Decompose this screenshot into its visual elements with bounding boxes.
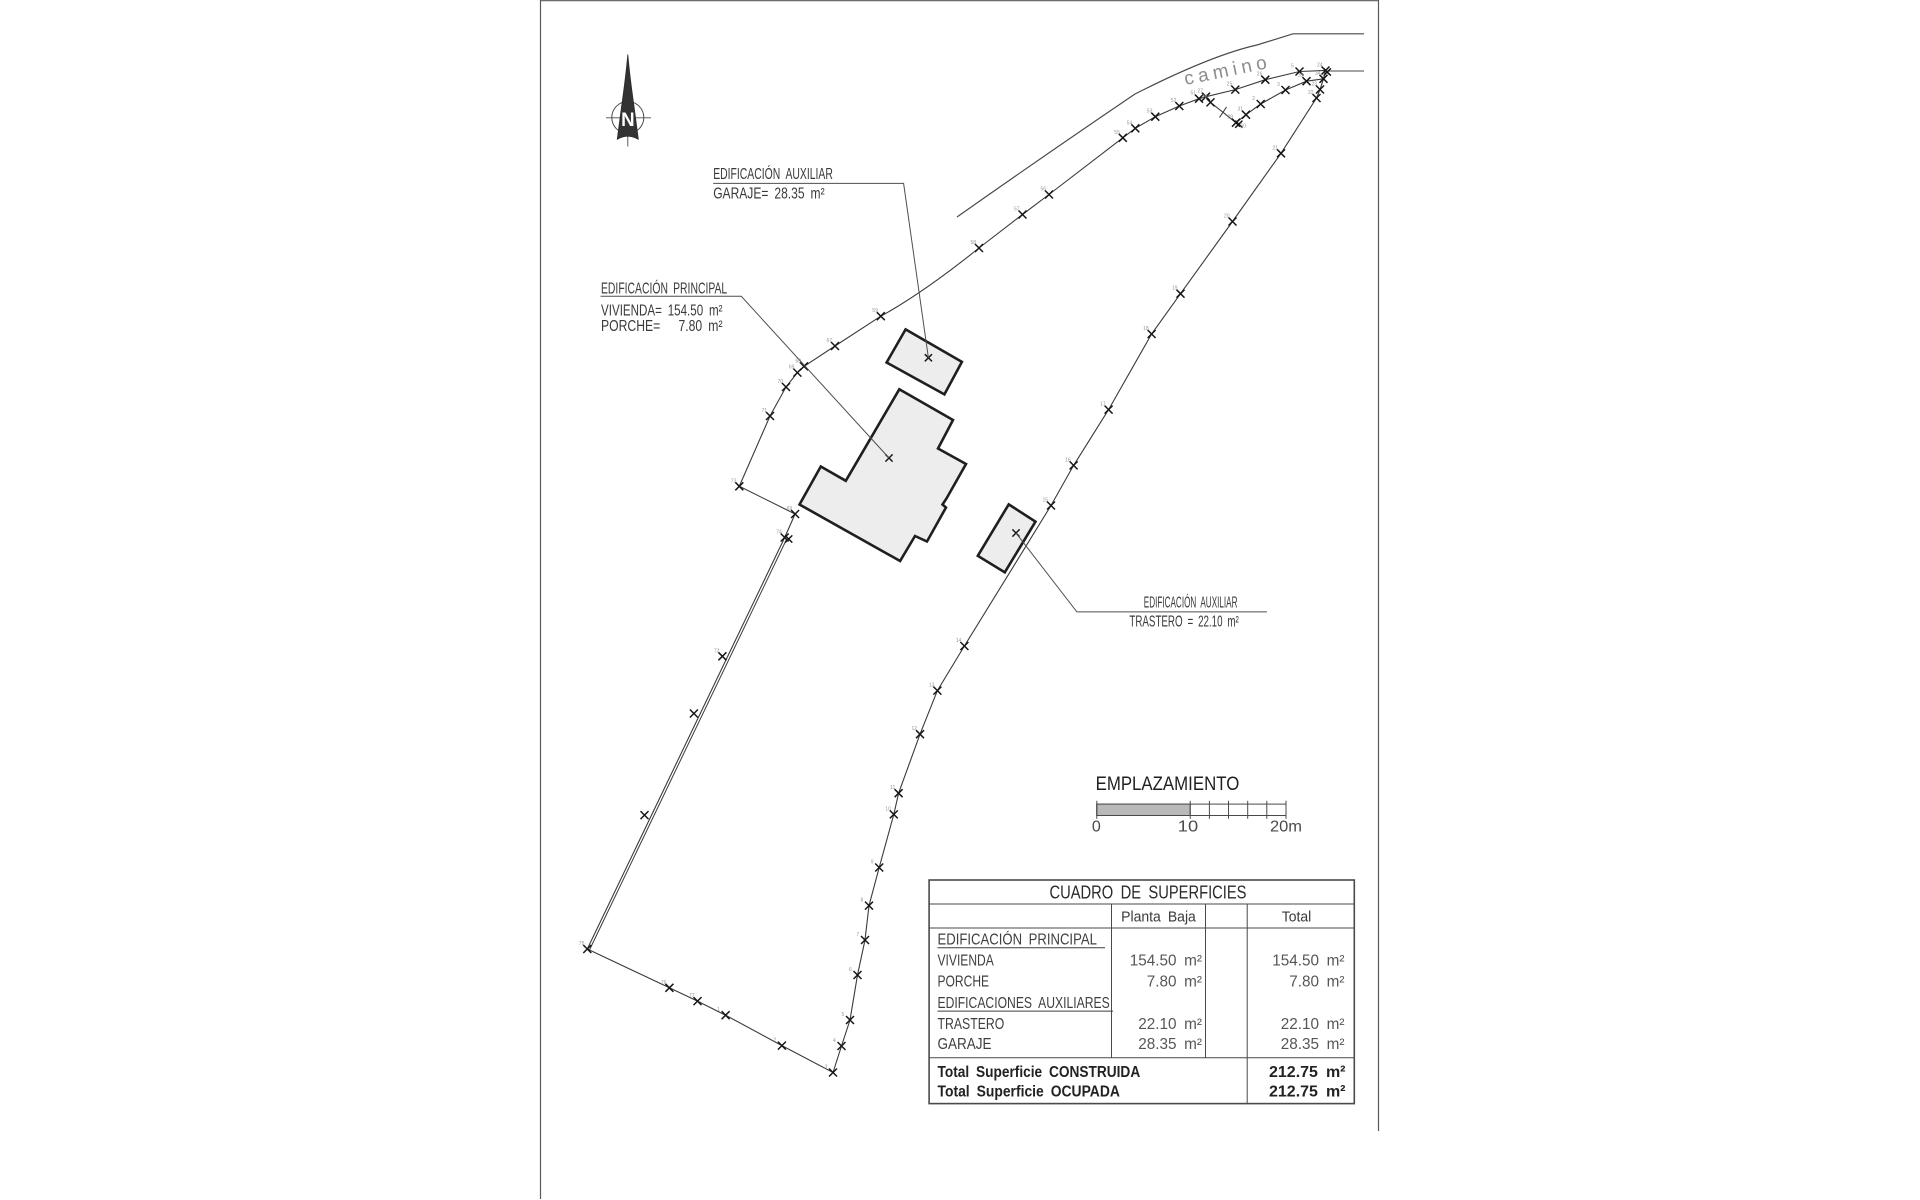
svg-text:EDIFICACIÓN PRINCIPAL: EDIFICACIÓN PRINCIPAL — [601, 281, 727, 298]
svg-text:22.10 m²: 22.10 m² — [1138, 1016, 1202, 1033]
svg-text:73: 73 — [731, 478, 737, 484]
svg-text:0: 0 — [1092, 819, 1101, 836]
svg-text:23: 23 — [1312, 82, 1318, 88]
svg-text:VIVIENDA= 154.50 m²: VIVIENDA= 154.50 m² — [601, 303, 723, 320]
svg-text:8: 8 — [861, 898, 864, 904]
svg-text:59: 59 — [872, 308, 878, 314]
svg-text:7.80 m²: 7.80 m² — [1147, 974, 1202, 991]
svg-text:17: 17 — [1100, 402, 1106, 408]
svg-text:51: 51 — [1191, 91, 1197, 97]
svg-text:3: 3 — [825, 1065, 828, 1071]
svg-text:15: 15 — [1043, 498, 1049, 504]
svg-text:GARAJE: GARAJE — [938, 1036, 992, 1053]
svg-text:22: 22 — [1308, 90, 1314, 96]
svg-text:28.35 m²: 28.35 m² — [1138, 1036, 1202, 1053]
svg-text:N: N — [621, 110, 635, 131]
svg-text:Total Superficie OCUPADA: Total Superficie OCUPADA — [938, 1084, 1121, 1101]
svg-text:5: 5 — [1291, 64, 1294, 70]
svg-text:PORCHE: PORCHE — [938, 974, 990, 991]
svg-text:70: 70 — [778, 379, 784, 385]
svg-text:CUADRO DE SUPERFICIES: CUADRO DE SUPERFICIES — [1050, 882, 1247, 903]
svg-text:29: 29 — [1228, 115, 1234, 121]
svg-text:Total: Total — [1282, 909, 1312, 925]
svg-text:28.35 m²: 28.35 m² — [1281, 1036, 1345, 1053]
svg-text:26: 26 — [1257, 72, 1263, 78]
svg-text:9: 9 — [871, 860, 874, 866]
svg-text:TRASTERO = 22.10 m²: TRASTERO = 22.10 m² — [1129, 614, 1238, 631]
svg-text:6: 6 — [849, 967, 852, 973]
svg-text:71: 71 — [762, 408, 768, 414]
svg-text:11: 11 — [890, 785, 895, 791]
svg-text:22.10 m²: 22.10 m² — [1281, 1016, 1345, 1033]
svg-text:18: 18 — [1143, 326, 1149, 332]
svg-text:69: 69 — [789, 365, 795, 371]
svg-text:20: 20 — [1224, 214, 1230, 220]
svg-text:Planta Baja: Planta Baja — [1121, 909, 1197, 925]
svg-text:25: 25 — [1227, 82, 1233, 88]
svg-text:3: 3 — [1277, 82, 1280, 88]
svg-text:75: 75 — [579, 941, 585, 947]
svg-text:31: 31 — [1238, 107, 1244, 113]
svg-text:TRASTERO: TRASTERO — [938, 1016, 1005, 1033]
svg-text:154.50 m²: 154.50 m² — [1272, 953, 1344, 970]
svg-text:21: 21 — [1273, 145, 1279, 151]
svg-text:1: 1 — [717, 1007, 720, 1013]
svg-text:EDIFICACIÓN AUXILIAR: EDIFICACIÓN AUXILIAR — [1144, 595, 1238, 612]
svg-text:5: 5 — [842, 1012, 845, 1018]
svg-text:52: 52 — [1171, 98, 1177, 104]
svg-text:55: 55 — [1114, 130, 1120, 136]
svg-text:EMPLAZAMIENTO: EMPLAZAMIENTO — [1096, 773, 1240, 795]
svg-text:34: 34 — [1315, 71, 1321, 77]
svg-text:57: 57 — [1014, 207, 1020, 213]
svg-text:19: 19 — [1172, 286, 1178, 292]
svg-text:154.50 m²: 154.50 m² — [1130, 953, 1202, 970]
svg-text:VIVIENDA: VIVIENDA — [938, 953, 995, 970]
svg-text:33: 33 — [1298, 73, 1304, 79]
svg-text:58: 58 — [971, 240, 977, 246]
svg-text:69: 69 — [787, 506, 793, 512]
svg-text:13: 13 — [929, 683, 935, 689]
svg-text:76: 76 — [661, 980, 667, 986]
svg-text:53: 53 — [1147, 109, 1153, 115]
svg-text:Total Superficie CONSTRUIDA: Total Superficie CONSTRUIDA — [938, 1064, 1141, 1081]
svg-text:GARAJE= 28.35 m²: GARAJE= 28.35 m² — [713, 186, 824, 203]
svg-text:10: 10 — [885, 806, 891, 812]
svg-text:74: 74 — [776, 530, 782, 536]
svg-text:12: 12 — [912, 726, 918, 732]
svg-text:67: 67 — [827, 338, 833, 344]
svg-text:10: 10 — [1178, 819, 1199, 836]
svg-text:2: 2 — [1252, 96, 1255, 102]
svg-text:7.80 m²: 7.80 m² — [1289, 974, 1344, 991]
svg-text:50: 50 — [1241, 124, 1247, 130]
svg-text:7: 7 — [857, 932, 860, 938]
svg-text:PORCHE= 7.80 m²: PORCHE= 7.80 m² — [601, 318, 723, 335]
svg-text:24: 24 — [1317, 63, 1323, 69]
svg-text:EDIFICACIÓN PRINCIPAL: EDIFICACIÓN PRINCIPAL — [938, 932, 1097, 949]
svg-text:14: 14 — [956, 638, 962, 644]
svg-text:EDIFICACIÓN AUXILIAR: EDIFICACIÓN AUXILIAR — [713, 166, 833, 183]
svg-text:20m: 20m — [1270, 819, 1302, 836]
svg-text:EDIFICACIONES AUXILIARES: EDIFICACIONES AUXILIARES — [938, 995, 1110, 1012]
svg-text:16: 16 — [1065, 457, 1071, 463]
svg-text:54: 54 — [1127, 120, 1133, 126]
svg-text:212.75 m²: 212.75 m² — [1269, 1064, 1346, 1081]
svg-text:4: 4 — [833, 1038, 836, 1044]
svg-text:212.75 m²: 212.75 m² — [1269, 1084, 1346, 1101]
svg-text:72: 72 — [714, 648, 720, 654]
svg-text:28: 28 — [1202, 94, 1208, 100]
svg-text:2: 2 — [773, 1038, 776, 1044]
svg-text:77: 77 — [689, 993, 695, 999]
svg-text:56: 56 — [1041, 187, 1047, 193]
